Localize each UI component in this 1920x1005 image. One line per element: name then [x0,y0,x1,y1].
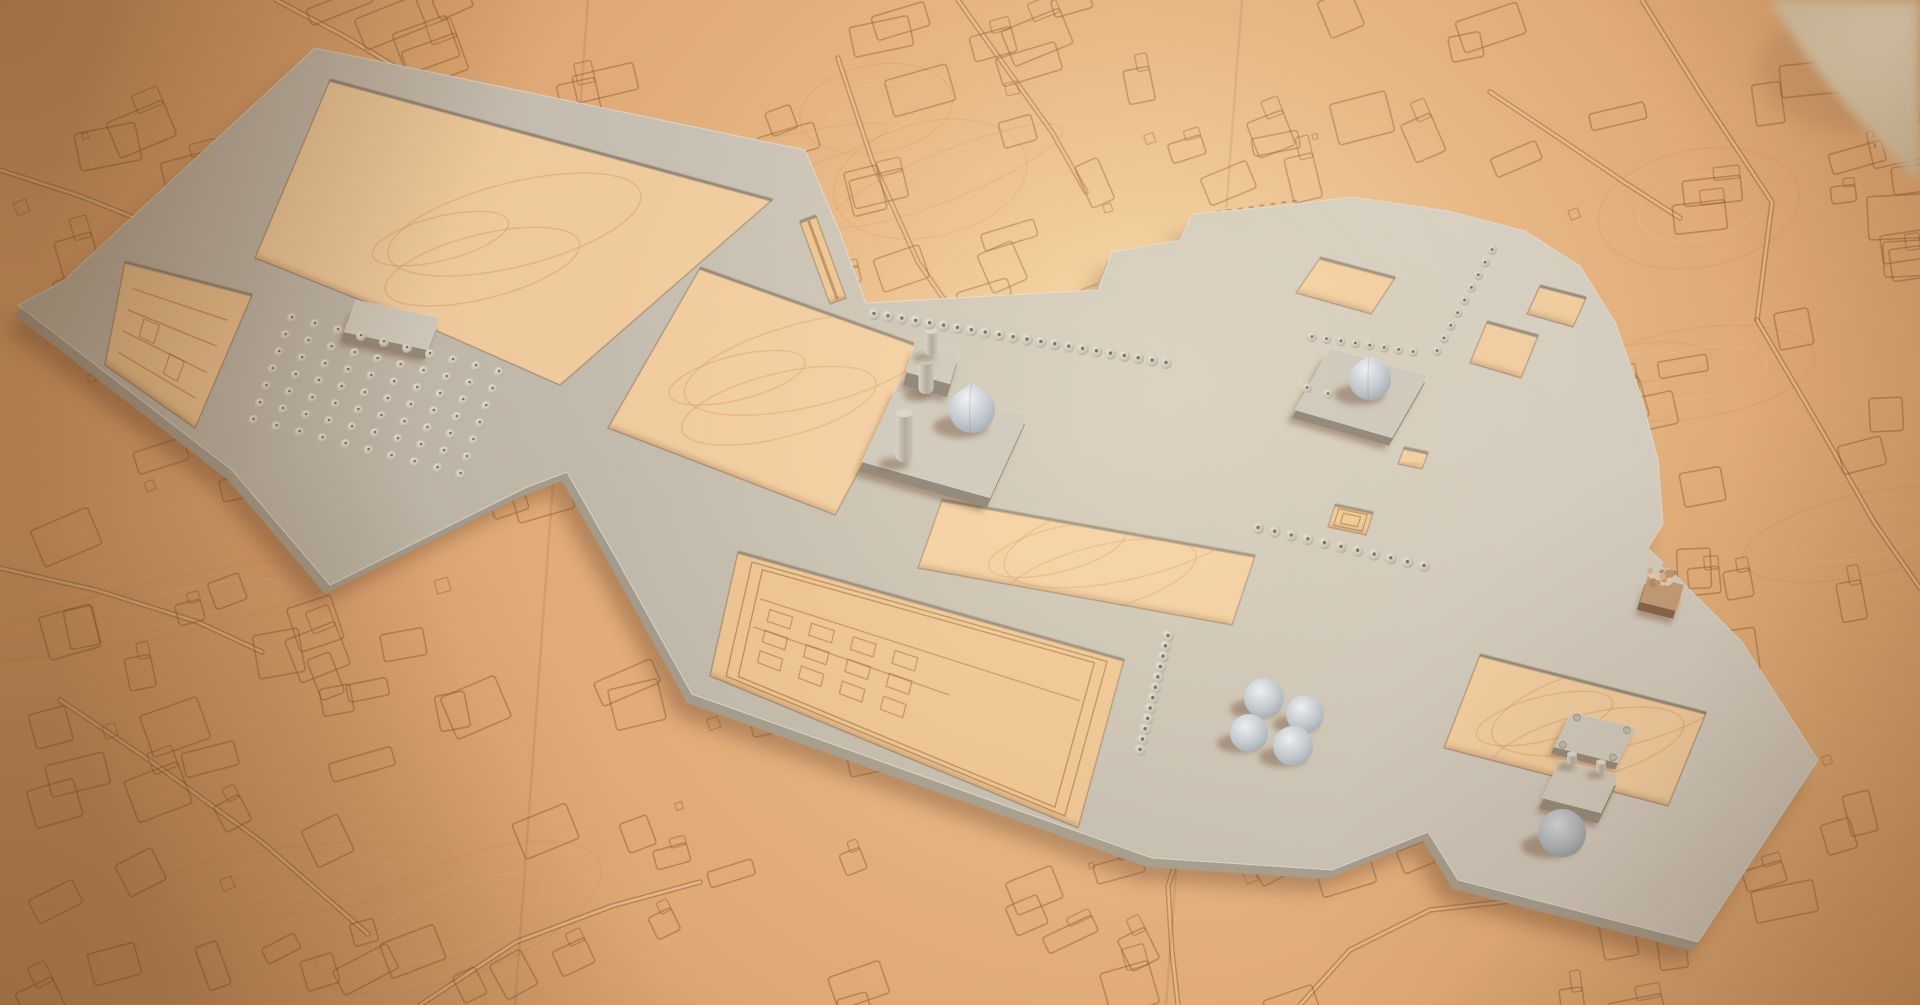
model-scene-svg [0,0,1920,1005]
architectural-model-render [0,0,1920,1005]
vignette [0,0,1920,1005]
